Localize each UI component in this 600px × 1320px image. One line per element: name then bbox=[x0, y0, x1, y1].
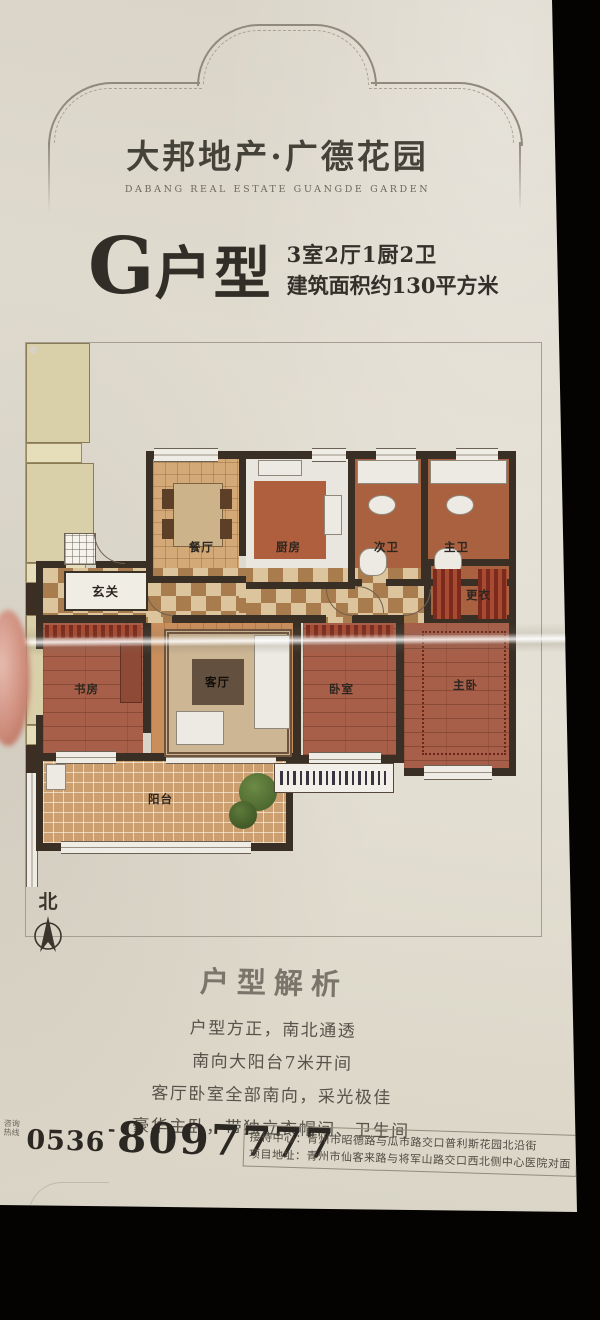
master-bed-mat bbox=[422, 631, 506, 755]
room-label-kitchen: 厨房 bbox=[276, 539, 301, 555]
room-label-dining: 餐厅 bbox=[189, 539, 214, 555]
study-desk bbox=[120, 643, 142, 703]
wall bbox=[172, 615, 326, 623]
unit-type-name: G户型 bbox=[88, 224, 273, 317]
wall bbox=[36, 761, 43, 851]
entry-door-leaf bbox=[64, 533, 96, 565]
wall bbox=[348, 451, 355, 589]
unit-room-count: 3室2厅1厨2卫 bbox=[287, 240, 499, 270]
unit-type-suffix: 户型 bbox=[155, 240, 273, 307]
page-corner-line bbox=[28, 1182, 109, 1223]
study-pillow bbox=[26, 443, 82, 463]
arch-border-top-left-dashed bbox=[114, 88, 202, 89]
floorplan: 餐厅 厨房 次卫 主卫 玄关 更衣 书房 客厅 卧室 主卧 阳台 北 bbox=[25, 342, 542, 937]
arch-border-top-right-dashed bbox=[369, 88, 457, 89]
dining-chair bbox=[220, 519, 232, 539]
dining-chair bbox=[220, 489, 232, 509]
arch-border-dome-dashed bbox=[203, 30, 369, 85]
wall bbox=[36, 561, 43, 649]
balcony-plant bbox=[229, 801, 257, 829]
room-label-second-bath: 次卫 bbox=[374, 539, 399, 555]
arch-border-top-right bbox=[371, 82, 461, 84]
study-bed bbox=[26, 343, 90, 443]
arch-border-top-left bbox=[112, 82, 200, 84]
master-bath-tub bbox=[430, 460, 507, 484]
bedroom-headboard-decor bbox=[306, 625, 393, 638]
balcony-unit bbox=[46, 764, 66, 790]
living-sofa bbox=[254, 635, 290, 729]
balcony-window bbox=[61, 841, 251, 854]
wall bbox=[348, 579, 362, 586]
wall bbox=[509, 451, 516, 626]
unit-type-letter: G bbox=[88, 221, 155, 312]
hotline-label-top: 咨询 bbox=[4, 1119, 20, 1128]
window bbox=[312, 448, 346, 462]
flyer-photo: 大邦地产·广德花园 DABANG REAL ESTATE GUANGDE GAR… bbox=[0, 0, 600, 1320]
kitchen-stove bbox=[324, 495, 342, 535]
dining-chair bbox=[162, 489, 174, 509]
hotline-label: 咨询 热线 bbox=[3, 1119, 20, 1137]
master-bath-toilet bbox=[446, 495, 474, 515]
entry-door-arc bbox=[94, 533, 125, 564]
hotline-label-bottom: 热线 bbox=[3, 1128, 19, 1137]
dining-table bbox=[173, 483, 223, 547]
wall bbox=[396, 623, 404, 763]
wall bbox=[352, 615, 404, 623]
room-label-closet: 更衣 bbox=[466, 587, 491, 603]
second-bath-toilet bbox=[368, 495, 396, 515]
wall bbox=[239, 451, 246, 556]
address-block: 接待中心：青州市昭德路与瓜市路交口普利斯花园北沿街 项目地址：青州市仙客来路与将… bbox=[243, 1124, 578, 1176]
window bbox=[154, 448, 218, 462]
unit-area: 建筑面积约130平方米 bbox=[287, 270, 499, 302]
unit-specs: 3室2厅1厨2卫 建筑面积约130平方米 bbox=[287, 240, 499, 302]
wall bbox=[509, 626, 516, 776]
kitchen-sink bbox=[258, 460, 302, 476]
master-south-window bbox=[424, 765, 492, 780]
closet-wardrobe bbox=[433, 569, 461, 619]
dining-chair bbox=[162, 519, 174, 539]
wall bbox=[143, 623, 151, 733]
unit-type-block: G户型 3室2厅1厨2卫 建筑面积约130平方米 bbox=[88, 224, 518, 324]
north-label: 北 bbox=[26, 887, 70, 914]
wall bbox=[36, 615, 146, 623]
study-headboard-decor bbox=[45, 625, 141, 638]
analysis-heading: 户型解析 bbox=[1, 954, 547, 1007]
north-indicator: 北 bbox=[26, 887, 70, 965]
phone-area-code: 0536 bbox=[26, 1125, 106, 1158]
decor-watermark-glyphs bbox=[280, 771, 386, 785]
living-tv-cabinet bbox=[176, 711, 224, 745]
wall bbox=[146, 576, 246, 583]
room-label-study: 书房 bbox=[74, 681, 99, 697]
room-label-master-bedroom: 主卧 bbox=[453, 677, 478, 693]
window bbox=[56, 751, 116, 764]
page-title: 大邦地产·广德花园 bbox=[0, 130, 555, 178]
decor-watermark-band bbox=[274, 763, 394, 793]
phone-separator: - bbox=[108, 1119, 116, 1140]
wall bbox=[246, 582, 355, 589]
room-label-living: 客厅 bbox=[205, 674, 230, 690]
room-label-master-bath: 主卫 bbox=[444, 539, 469, 555]
page-subtitle: DABANG REAL ESTATE GUANGDE GARDEN bbox=[0, 184, 555, 195]
room-label-entry: 玄关 bbox=[92, 581, 119, 600]
room-label-bedroom: 卧室 bbox=[329, 681, 354, 697]
second-bath-tub bbox=[357, 460, 419, 484]
wall bbox=[293, 623, 301, 763]
room-label-balcony: 阳台 bbox=[148, 791, 173, 807]
wall bbox=[146, 451, 153, 583]
